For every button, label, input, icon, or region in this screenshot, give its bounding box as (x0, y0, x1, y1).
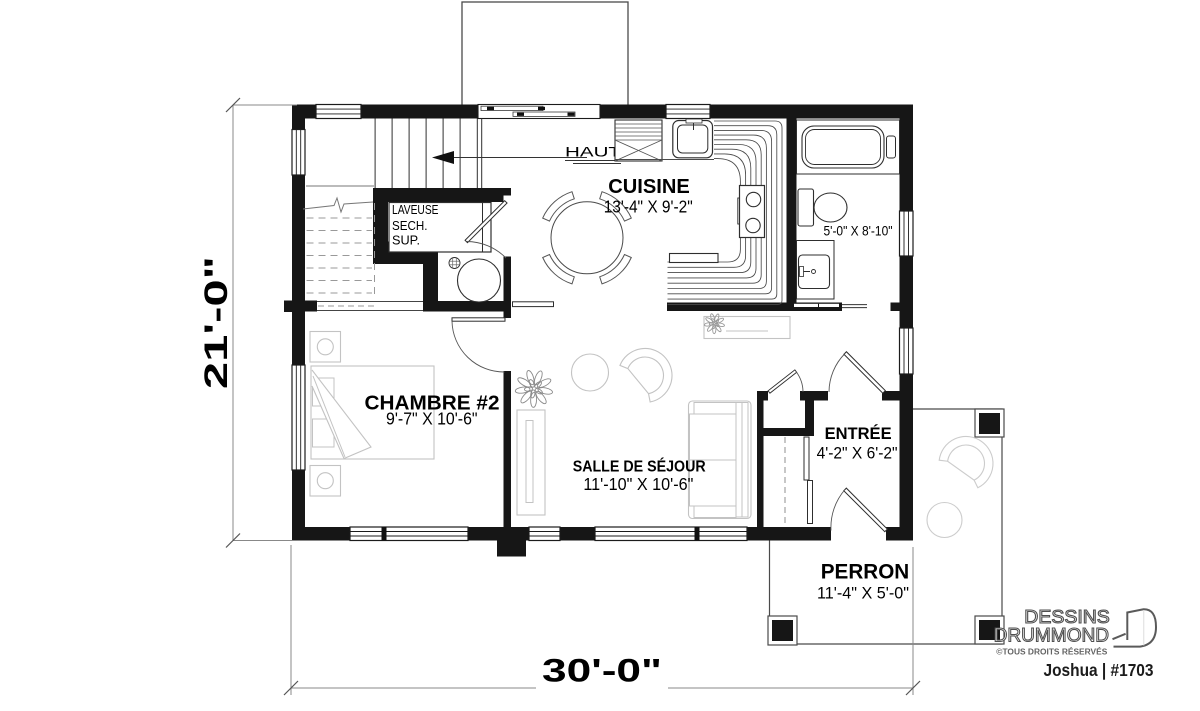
svg-text:13'-4" X 9'-2": 13'-4" X 9'-2" (604, 197, 693, 217)
svg-text:PERRON: PERRON (821, 560, 910, 584)
svg-text:©TOUS DROITS RÉSERVÉS: ©TOUS DROITS RÉSERVÉS (996, 646, 1107, 656)
svg-text:11'-10" X 10'-6": 11'-10" X 10'-6" (583, 474, 693, 494)
svg-text:21'-0": 21'-0" (198, 256, 234, 389)
svg-text:DRUMMOND: DRUMMOND (994, 625, 1110, 647)
svg-text:SALLE DE SÉJOUR: SALLE DE SÉJOUR (573, 458, 706, 475)
svg-text:HAUT: HAUT (565, 143, 622, 159)
svg-text:30'-0": 30'-0" (542, 653, 662, 689)
svg-text:LAVEUSE: LAVEUSE (392, 202, 439, 217)
svg-text:4'-2" X 6'-2": 4'-2" X 6'-2" (817, 444, 898, 463)
svg-text:11'-4" X 5'-0": 11'-4" X 5'-0" (817, 583, 909, 602)
svg-text:SUP.: SUP. (392, 233, 420, 248)
svg-text:SECH.: SECH. (392, 218, 428, 233)
svg-text:9'-7" X 10'-6": 9'-7" X 10'-6" (386, 409, 478, 429)
svg-text:Joshua | #1703: Joshua | #1703 (1044, 660, 1154, 680)
svg-text:ENTRÉE: ENTRÉE (825, 424, 892, 443)
svg-text:5'-0" X 8'-10": 5'-0" X 8'-10" (824, 223, 893, 238)
svg-text:CUISINE: CUISINE (608, 176, 690, 198)
